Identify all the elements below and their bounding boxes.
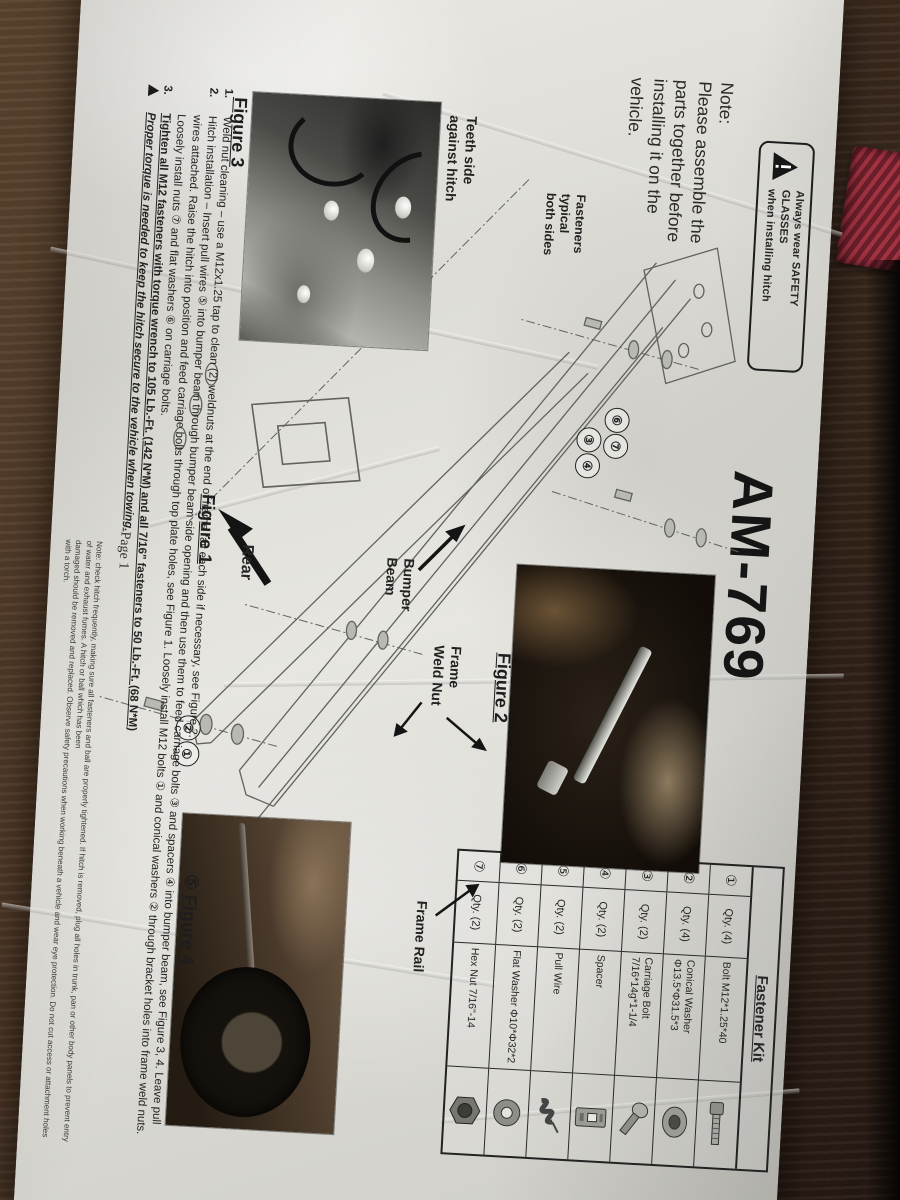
figure4-photo xyxy=(166,813,351,1134)
document-content: Always wear SAFETY GLASSES when installi… xyxy=(33,0,838,1200)
figure2-caption: Figure 2 xyxy=(490,652,515,723)
bumper-beam-arrow xyxy=(419,522,466,572)
figure2-photo xyxy=(501,565,715,874)
fasteners-typical-label: Fastenerstypicalboth sides xyxy=(540,192,588,257)
page-number: Page 1 xyxy=(115,531,133,570)
figure3-photo xyxy=(240,92,442,350)
photo-scene: Always wear SAFETY GLASSES when installi… xyxy=(0,0,900,1200)
frame-weld-nut-label: FrameWeld Nut xyxy=(428,645,465,707)
rear-label: Rear xyxy=(236,544,256,581)
frame-weld-nut-arrows xyxy=(393,701,489,751)
teeth-side-label: Teeth sideagainst hitch xyxy=(442,115,480,203)
red-strap xyxy=(835,145,900,272)
warning-triangle-icon xyxy=(148,84,160,97)
frame-rail-arrow xyxy=(436,882,480,918)
bumper-beam-label: BumperBeam xyxy=(381,557,417,612)
